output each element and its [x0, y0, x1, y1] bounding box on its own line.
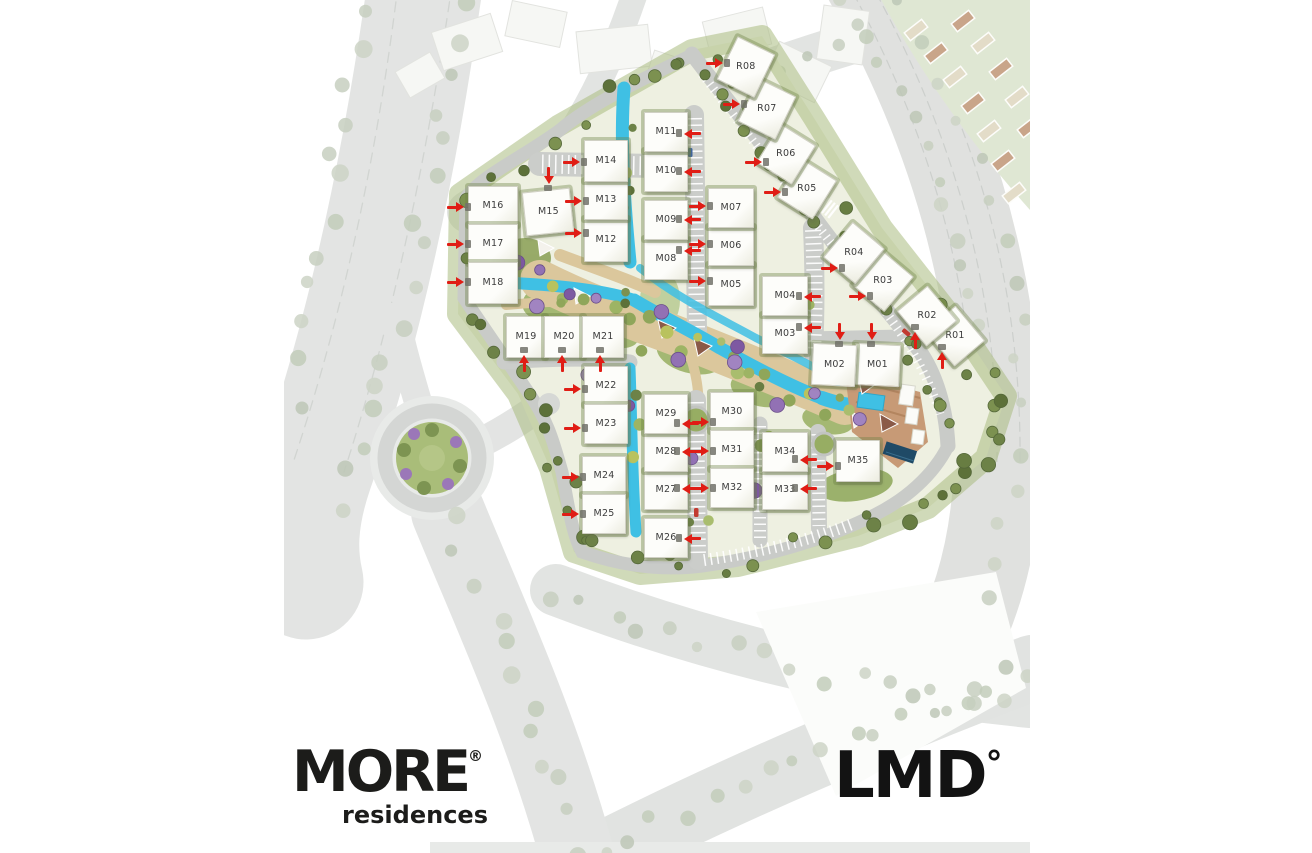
entrance-arrow: [692, 483, 709, 494]
entrance-arrow: [804, 322, 821, 333]
entrance-stub: [782, 188, 788, 196]
entrance-arrow: [684, 533, 701, 544]
entrance-stub: [839, 264, 845, 272]
building-label: M08: [656, 254, 677, 264]
building-label: M13: [596, 195, 617, 205]
entrance-arrow: [562, 509, 579, 520]
building-label: M16: [483, 201, 504, 211]
entrance-stub: [544, 185, 552, 191]
entrance-arrow: [684, 166, 701, 177]
entrance-stub: [707, 240, 713, 248]
entrance-arrow: [800, 454, 817, 465]
building-label: M17: [483, 239, 504, 249]
building-m32[interactable]: M32: [710, 468, 754, 508]
building-label: R05: [797, 184, 816, 194]
entrance-arrow: [563, 157, 580, 168]
entrance-stub: [582, 385, 588, 393]
entrance-stub: [867, 341, 875, 347]
building-label: M31: [722, 445, 743, 455]
building-m01[interactable]: M01: [853, 343, 901, 387]
building-m30[interactable]: M30: [710, 392, 754, 432]
building-label: M18: [483, 278, 504, 288]
entrance-stub: [835, 462, 841, 470]
building-label: M32: [722, 483, 743, 493]
entrance-stub: [580, 473, 586, 481]
building-m17[interactable]: M17: [468, 224, 518, 264]
entrance-arrow: [745, 157, 762, 168]
entrance-arrow: [692, 446, 709, 457]
entrance-stub: [763, 158, 769, 166]
building-label: M02: [824, 360, 845, 370]
entrance-arrow: [595, 355, 606, 372]
entrance-stub: [867, 292, 873, 300]
entrance-arrow: [764, 187, 781, 198]
building-label: M05: [721, 280, 742, 290]
building-label: R01: [945, 331, 964, 341]
entrance-arrow: [723, 99, 740, 110]
building-m07[interactable]: M07: [708, 188, 754, 228]
building-label: M03: [775, 329, 796, 339]
building-label: M21: [593, 332, 614, 342]
entrance-arrow: [804, 291, 821, 302]
building-label: R07: [757, 104, 776, 114]
entrance-stub: [674, 419, 680, 427]
entrance-stub: [676, 534, 682, 542]
building-label: M01: [867, 360, 888, 370]
entrance-stub: [465, 203, 471, 211]
entrance-stub: [835, 341, 843, 347]
building-label: M19: [516, 332, 537, 342]
entrance-arrow: [684, 128, 701, 139]
entrance-arrow: [689, 276, 706, 287]
registered-mark-icon: ®: [468, 747, 483, 765]
entrance-arrow: [834, 323, 845, 340]
entrance-stub: [674, 484, 680, 492]
building-m02[interactable]: M02: [811, 343, 857, 387]
building-label: M06: [721, 241, 742, 251]
entrance-stub: [710, 447, 716, 455]
building-label: M35: [848, 456, 869, 466]
building-label: M22: [596, 381, 617, 391]
entrance-stub: [741, 100, 747, 108]
building-label: M26: [656, 533, 677, 543]
entrance-arrow: [447, 239, 464, 250]
building-m13[interactable]: M13: [584, 180, 628, 220]
building-label: R06: [776, 149, 795, 159]
building-label: M24: [594, 471, 615, 481]
entrance-stub: [583, 229, 589, 237]
building-label: M04: [775, 291, 796, 301]
building-m31[interactable]: M31: [710, 430, 754, 470]
building-m22[interactable]: M22: [584, 366, 628, 406]
entrance-arrow: [519, 355, 530, 372]
building-label: R08: [736, 62, 755, 72]
entrance-stub: [710, 484, 716, 492]
buildings-layer: M01M02M03M04M05M06M07M08M09M10M11M12M13M…: [0, 0, 1312, 853]
project-logo-tagline: residences: [292, 801, 488, 829]
entrance-arrow: [817, 461, 834, 472]
building-m12[interactable]: M12: [584, 218, 628, 262]
building-m23[interactable]: M23: [584, 404, 628, 444]
entrance-arrow: [692, 417, 709, 428]
building-m34[interactable]: M34: [762, 432, 808, 472]
building-m05[interactable]: M05: [708, 264, 754, 306]
entrance-stub: [465, 278, 471, 286]
building-label: M29: [656, 409, 677, 419]
entrance-stub: [583, 197, 589, 205]
entrance-stub: [707, 202, 713, 210]
project-logo: MORE® residences: [292, 746, 492, 829]
degree-mark-icon: °: [986, 744, 1003, 784]
building-label: M23: [596, 419, 617, 429]
entrance-stub: [582, 424, 588, 432]
building-m18[interactable]: M18: [468, 262, 518, 304]
building-label: M12: [596, 235, 617, 245]
entrance-stub: [796, 292, 802, 300]
entrance-stub: [676, 129, 682, 137]
entrance-arrow: [849, 291, 866, 302]
building-label: M25: [594, 509, 615, 519]
developer-logo: LMD°: [834, 744, 1003, 808]
building-label: M14: [596, 156, 617, 166]
entrance-stub: [792, 484, 798, 492]
building-m14[interactable]: M14: [584, 140, 628, 182]
entrance-stub: [724, 59, 730, 67]
project-logo-wordmark: MORE®: [292, 746, 492, 798]
entrance-stub: [707, 277, 713, 285]
entrance-arrow: [821, 263, 838, 274]
entrance-stub: [580, 510, 586, 518]
entrance-stub: [676, 167, 682, 175]
building-m06[interactable]: M06: [708, 226, 754, 266]
entrance-arrow: [562, 472, 579, 483]
building-m24[interactable]: M24: [582, 456, 626, 496]
entrance-arrow: [910, 332, 921, 349]
building-m35[interactable]: M35: [836, 440, 880, 482]
entrance-stub: [520, 347, 528, 353]
entrance-stub: [558, 347, 566, 353]
entrance-arrow: [689, 201, 706, 212]
building-label: M09: [656, 215, 677, 225]
building-m08[interactable]: M08: [644, 238, 688, 280]
entrance-stub: [581, 158, 587, 166]
entrance-stub: [676, 215, 682, 223]
entrance-stub: [674, 447, 680, 455]
entrance-arrow: [565, 196, 582, 207]
building-label: R02: [917, 311, 936, 321]
building-m03[interactable]: M03: [762, 314, 808, 354]
entrance-arrow: [684, 214, 701, 225]
entrance-arrow: [800, 483, 817, 494]
entrance-arrow: [447, 277, 464, 288]
building-label: M20: [554, 332, 575, 342]
entrance-stub: [596, 347, 604, 353]
entrance-arrow: [447, 202, 464, 213]
entrance-arrow: [866, 323, 877, 340]
entrance-arrow: [565, 228, 582, 239]
entrance-arrow: [706, 58, 723, 69]
building-label: M10: [656, 166, 677, 176]
entrance-stub: [710, 418, 716, 426]
entrance-arrow: [564, 384, 581, 395]
entrance-stub: [796, 323, 802, 331]
building-label: M07: [721, 203, 742, 213]
entrance-stub: [911, 324, 919, 330]
entrance-arrow: [937, 352, 948, 369]
entrance-arrow: [564, 423, 581, 434]
entrance-arrow: [684, 245, 701, 256]
building-m25[interactable]: M25: [582, 494, 626, 534]
building-label: M11: [656, 127, 677, 137]
entrance-arrow: [543, 167, 554, 184]
master-plan-map: M01M02M03M04M05M06M07M08M09M10M11M12M13M…: [0, 0, 1312, 853]
entrance-stub: [938, 344, 946, 350]
entrance-stub: [465, 240, 471, 248]
entrance-stub: [676, 246, 682, 254]
building-label: R03: [873, 276, 892, 286]
building-label: M15: [538, 207, 559, 217]
building-label: M30: [722, 407, 743, 417]
building-label: R04: [844, 248, 863, 257]
building-m16[interactable]: M16: [468, 186, 518, 226]
entrance-arrow: [557, 355, 568, 372]
entrance-stub: [792, 455, 798, 463]
